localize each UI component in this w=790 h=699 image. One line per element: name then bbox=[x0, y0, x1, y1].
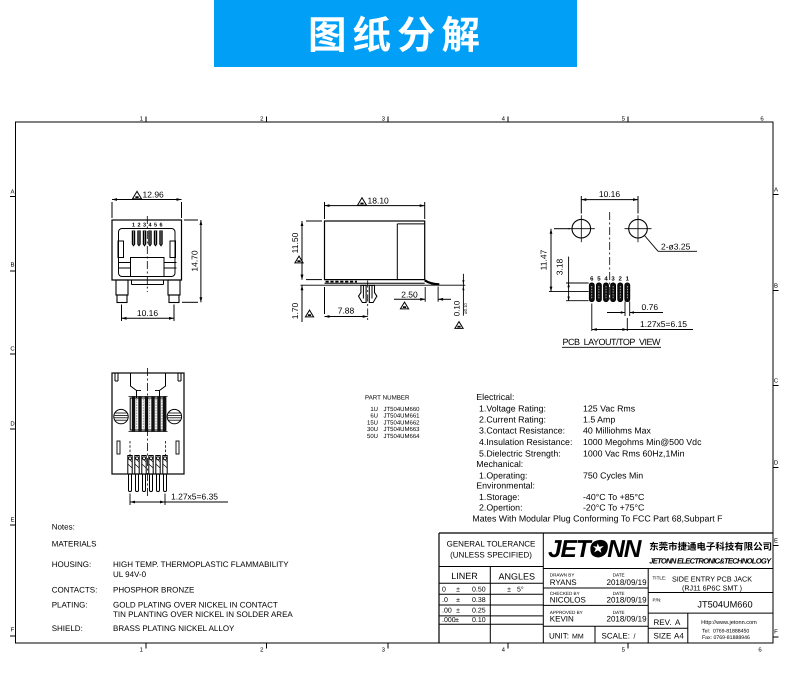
svg-text:1.Voltage Rating:: 1.Voltage Rating: bbox=[479, 403, 546, 413]
svg-text:-20°C To +75°C: -20°C To +75°C bbox=[583, 502, 645, 512]
svg-text:PART NUMBER: PART NUMBER bbox=[365, 395, 410, 402]
svg-text:Mates With Modular Plug Confor: Mates With Modular Plug Conforming To FC… bbox=[472, 514, 723, 524]
svg-text:HIGH TEMP. THERMOPLASTIC FLAMM: HIGH TEMP. THERMOPLASTIC FLAMMABILITY bbox=[113, 560, 289, 569]
svg-text:0.76: 0.76 bbox=[642, 302, 659, 312]
svg-text:REV.: REV. bbox=[654, 618, 672, 627]
svg-text:2-ø3.25: 2-ø3.25 bbox=[661, 241, 691, 251]
svg-text:TITLE:: TITLE: bbox=[653, 576, 667, 581]
svg-text:6: 6 bbox=[159, 223, 162, 229]
svg-text:SIZE: SIZE bbox=[654, 631, 672, 640]
svg-text:125 Vac Rms: 125 Vac Rms bbox=[583, 403, 636, 413]
svg-text:±: ± bbox=[456, 608, 460, 615]
svg-text:DRAWN BY: DRAWN BY bbox=[550, 573, 575, 578]
svg-text:JT504UM660: JT504UM660 bbox=[697, 600, 752, 610]
svg-text:5: 5 bbox=[154, 223, 157, 229]
svg-text:11.47: 11.47 bbox=[538, 249, 548, 270]
svg-text:Mechanical:: Mechanical: bbox=[476, 459, 523, 469]
svg-text:(UNLESS SPECIFIED): (UNLESS SPECIFIED) bbox=[450, 551, 532, 560]
svg-text:3: 3 bbox=[143, 223, 146, 229]
svg-text:11.50: 11.50 bbox=[290, 232, 300, 253]
svg-text:ø0.10: ø0.10 bbox=[463, 302, 468, 313]
svg-text:JT504UM663: JT504UM663 bbox=[384, 426, 421, 433]
svg-text:MM: MM bbox=[572, 633, 584, 640]
svg-text:PHOSPHOR BRONZE: PHOSPHOR BRONZE bbox=[113, 586, 194, 595]
svg-text:JT504UM662: JT504UM662 bbox=[384, 419, 421, 426]
svg-text:1000 Vac Rms 60Hz,1Min: 1000 Vac Rms 60Hz,1Min bbox=[583, 448, 685, 458]
svg-text:5°: 5° bbox=[517, 586, 524, 593]
svg-text:12.96: 12.96 bbox=[143, 189, 165, 199]
svg-text:ANGLES: ANGLES bbox=[499, 571, 536, 581]
svg-text:RYANS: RYANS bbox=[550, 578, 577, 587]
svg-text:JT504UM661: JT504UM661 bbox=[384, 413, 421, 420]
svg-text:B: B bbox=[10, 262, 14, 269]
svg-text:2: 2 bbox=[137, 223, 140, 229]
svg-text:UNIT:: UNIT: bbox=[549, 631, 569, 640]
svg-text:2018/09/19: 2018/09/19 bbox=[607, 615, 648, 624]
svg-text:SCALE:: SCALE: bbox=[602, 631, 630, 640]
svg-text:3.18: 3.18 bbox=[555, 258, 565, 275]
svg-text:B: B bbox=[774, 283, 778, 290]
svg-text:0.25: 0.25 bbox=[472, 608, 486, 615]
svg-text:1U: 1U bbox=[370, 406, 378, 413]
svg-text:D: D bbox=[10, 421, 15, 428]
svg-text:4.Insulation Resistance:: 4.Insulation Resistance: bbox=[479, 437, 572, 447]
svg-text:/: / bbox=[634, 632, 636, 640]
svg-text:2.Current Rating:: 2.Current Rating: bbox=[479, 415, 546, 425]
svg-text:1.70: 1.70 bbox=[290, 302, 300, 319]
svg-text:±: ± bbox=[456, 597, 460, 604]
svg-text:1.5 Amp: 1.5 Amp bbox=[583, 415, 615, 425]
svg-text:750 Cycles Min: 750 Cycles Min bbox=[583, 470, 643, 480]
svg-text:A: A bbox=[774, 187, 778, 194]
svg-text:SIDE ENTRY PCB JACK: SIDE ENTRY PCB JACK bbox=[672, 575, 752, 584]
svg-text:1000 Megohms Min@500 Vdc: 1000 Megohms Min@500 Vdc bbox=[583, 437, 702, 447]
svg-text:Http://www.jetonn.com: Http://www.jetonn.com bbox=[701, 619, 757, 626]
svg-text:HOUSING:: HOUSING: bbox=[52, 560, 92, 569]
svg-text:±: ± bbox=[456, 586, 460, 593]
svg-text:2018/09/19: 2018/09/19 bbox=[607, 596, 648, 605]
svg-text:1.27x5=6.35: 1.27x5=6.35 bbox=[171, 492, 218, 502]
svg-text:30U: 30U bbox=[367, 426, 378, 433]
svg-text:10.16: 10.16 bbox=[137, 308, 159, 318]
svg-text:C: C bbox=[10, 346, 15, 353]
svg-text:JT504UM660: JT504UM660 bbox=[384, 406, 421, 413]
svg-text:BRASS PLATING NICKEL ALLOY: BRASS PLATING NICKEL ALLOY bbox=[113, 624, 235, 633]
svg-text:1: 1 bbox=[132, 223, 135, 229]
svg-text:SHIELD:: SHIELD: bbox=[52, 624, 83, 633]
svg-text:2.50: 2.50 bbox=[401, 289, 418, 299]
svg-text:5.Dielectric Strength:: 5.Dielectric Strength: bbox=[479, 448, 561, 458]
svg-text:1.27x5=6.15: 1.27x5=6.15 bbox=[640, 319, 687, 329]
svg-text:2.Opertion:: 2.Opertion: bbox=[479, 502, 523, 512]
svg-text:A: A bbox=[10, 189, 14, 196]
svg-text:JT504UM664: JT504UM664 bbox=[384, 433, 421, 440]
svg-text:0.10: 0.10 bbox=[452, 300, 461, 316]
svg-text:0.38: 0.38 bbox=[472, 597, 486, 604]
svg-text:0.50: 0.50 bbox=[472, 586, 486, 593]
svg-text:15U: 15U bbox=[367, 419, 378, 426]
svg-text:Electrical:: Electrical: bbox=[476, 392, 514, 402]
svg-text:UL 94V-0: UL 94V-0 bbox=[113, 570, 147, 579]
svg-text:50U: 50U bbox=[367, 433, 378, 440]
svg-text:DATE: DATE bbox=[613, 573, 625, 578]
svg-text:-40°C To +85°C: -40°C To +85°C bbox=[583, 492, 645, 502]
svg-text:MATERIALS: MATERIALS bbox=[52, 540, 97, 549]
svg-text:D: D bbox=[774, 460, 779, 467]
svg-text:±: ± bbox=[507, 586, 511, 593]
svg-text:18.10: 18.10 bbox=[368, 195, 390, 205]
svg-text:NICOLOS: NICOLOS bbox=[550, 596, 586, 605]
svg-text:TIN PLANTING OVER NICKEL IN SO: TIN PLANTING OVER NICKEL IN SOLDER AREA bbox=[113, 610, 293, 619]
svg-text:7.88: 7.88 bbox=[338, 306, 355, 316]
svg-text:LINER: LINER bbox=[451, 571, 478, 581]
svg-text:CONTACTS:: CONTACTS: bbox=[52, 586, 98, 595]
svg-text:A: A bbox=[675, 618, 681, 627]
svg-text:PCB LAYOUT/TOP VIEW: PCB LAYOUT/TOP VIEW bbox=[563, 337, 662, 347]
svg-text:2018/09/19: 2018/09/19 bbox=[607, 578, 648, 587]
svg-text:JETONN ELECTRONIC&TECHNOLOGY: JETONN ELECTRONIC&TECHNOLOGY bbox=[649, 556, 772, 565]
svg-text:0: 0 bbox=[442, 586, 446, 593]
svg-text:Environmental:: Environmental: bbox=[476, 481, 535, 491]
svg-text:±: ± bbox=[455, 617, 459, 624]
svg-text:PLATING:: PLATING: bbox=[52, 601, 88, 610]
svg-text:KEVIN: KEVIN bbox=[550, 615, 574, 624]
svg-text:3.Contact Resistance:: 3.Contact Resistance: bbox=[479, 426, 565, 436]
svg-text:F: F bbox=[774, 629, 778, 636]
svg-text:10.16: 10.16 bbox=[599, 189, 621, 199]
svg-text:1.Operating:: 1.Operating: bbox=[479, 470, 527, 480]
svg-text:.00: .00 bbox=[442, 608, 452, 615]
svg-text:.0: .0 bbox=[442, 597, 448, 604]
svg-text:1.Storage:: 1.Storage: bbox=[479, 492, 520, 502]
svg-text:P/N:: P/N: bbox=[653, 598, 662, 603]
svg-text:Tel: 0769-81888450: Tel: 0769-81888450 bbox=[702, 628, 749, 634]
svg-text:6U: 6U bbox=[370, 413, 378, 420]
svg-text:A4: A4 bbox=[674, 631, 684, 640]
svg-text:F: F bbox=[11, 627, 15, 634]
svg-text:Fax: 0769-81888946: Fax: 0769-81888946 bbox=[702, 635, 750, 641]
svg-text:0.10: 0.10 bbox=[472, 617, 486, 624]
svg-text:C: C bbox=[774, 378, 779, 385]
svg-text:40 Milliohms Max: 40 Milliohms Max bbox=[583, 426, 652, 436]
svg-text:E: E bbox=[774, 538, 778, 545]
svg-text:GOLD PLATING OVER NICKEL IN CO: GOLD PLATING OVER NICKEL IN CONTACT bbox=[113, 601, 278, 610]
svg-text:E: E bbox=[10, 517, 14, 524]
svg-text:Notes:: Notes: bbox=[52, 523, 75, 532]
svg-text:.000: .000 bbox=[442, 617, 456, 624]
svg-text:(RJ11 6P6C SMT ): (RJ11 6P6C SMT ) bbox=[682, 583, 742, 592]
svg-text:14.70: 14.70 bbox=[190, 250, 200, 272]
svg-text:GENERAL TOLERANCE: GENERAL TOLERANCE bbox=[447, 540, 536, 549]
